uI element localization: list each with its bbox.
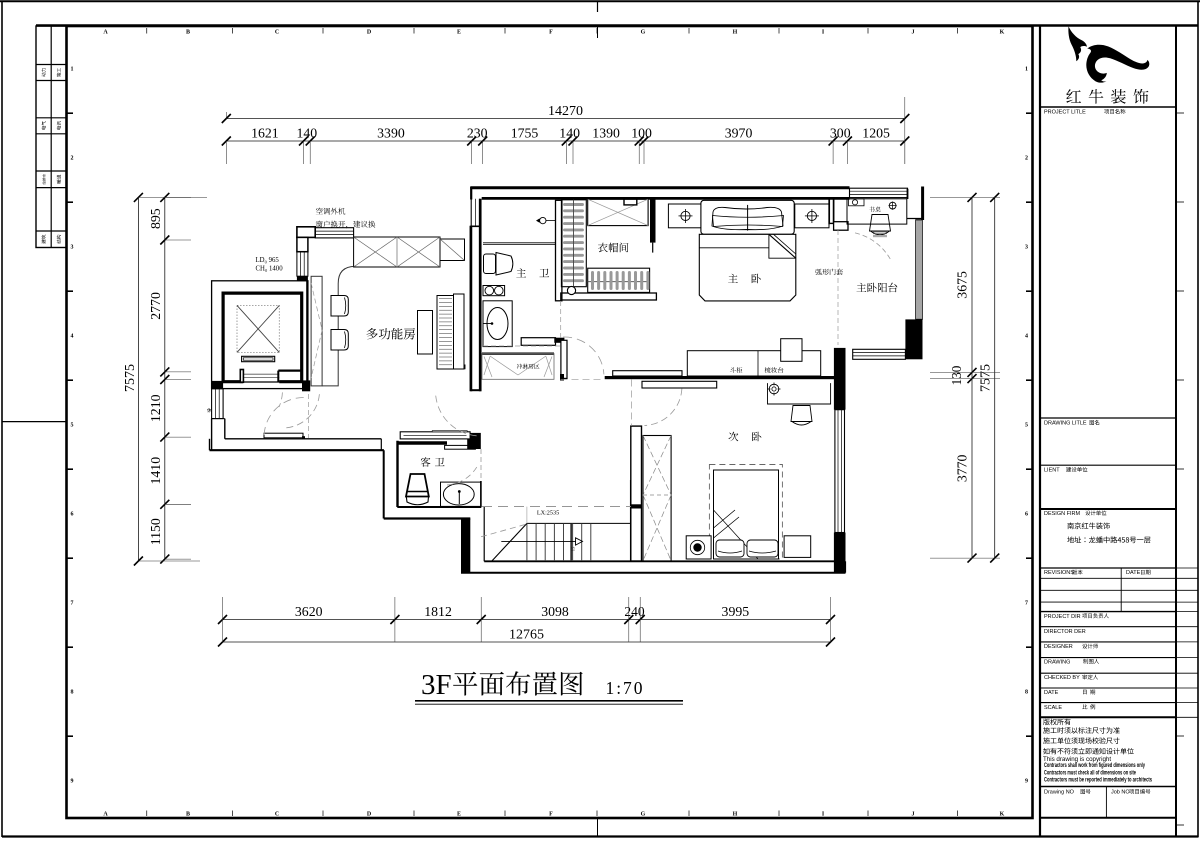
svg-text:PROJECT LITLE: PROJECT LITLE <box>1044 110 1086 116</box>
svg-text:A: A <box>103 30 108 36</box>
svg-text:3620: 3620 <box>295 604 323 619</box>
svg-text:SCALE: SCALE <box>1044 705 1062 711</box>
svg-text:G: G <box>641 30 646 36</box>
svg-text:4: 4 <box>1025 334 1028 340</box>
svg-text:H: H <box>733 30 738 36</box>
svg-text:D: D <box>367 812 372 818</box>
svg-text:F: F <box>549 30 553 36</box>
svg-text:15: 15 <box>571 546 576 551</box>
svg-text:3390: 3390 <box>377 126 405 141</box>
svg-text:A: A <box>103 812 108 818</box>
svg-text:3770: 3770 <box>955 454 970 482</box>
svg-text:3: 3 <box>1025 245 1028 251</box>
svg-text:6: 6 <box>1025 512 1028 518</box>
svg-text:DRAWING LITLE: DRAWING LITLE <box>1044 421 1087 427</box>
svg-text:C: C <box>275 812 279 818</box>
svg-text:LX:2535: LX:2535 <box>537 510 559 517</box>
svg-text:100: 100 <box>631 126 652 141</box>
svg-text:7575: 7575 <box>979 364 994 392</box>
svg-text:1812: 1812 <box>424 604 452 619</box>
svg-text:230: 230 <box>467 126 488 141</box>
svg-text:14270: 14270 <box>548 104 583 119</box>
svg-text:140: 140 <box>559 126 580 141</box>
svg-text:J: J <box>912 812 915 818</box>
svg-text:2770: 2770 <box>148 292 163 320</box>
svg-text:7575: 7575 <box>123 364 138 392</box>
svg-text:This drawing is copyright: This drawing is copyright <box>1043 756 1111 763</box>
svg-text:8: 8 <box>71 690 74 696</box>
svg-text:H: H <box>733 812 738 818</box>
svg-text:12765: 12765 <box>509 628 544 643</box>
svg-text:3F: 3F <box>421 669 452 701</box>
svg-text:1205: 1205 <box>862 126 890 141</box>
svg-text:B: B <box>186 812 190 818</box>
svg-text:9: 9 <box>1025 779 1028 785</box>
svg-text:休: 休 <box>207 407 212 414</box>
svg-text:G: G <box>641 812 646 818</box>
svg-text:130: 130 <box>949 365 964 385</box>
svg-text:DRAWING: DRAWING <box>1044 659 1070 665</box>
svg-text:1410: 1410 <box>148 457 163 485</box>
svg-text:1210: 1210 <box>148 394 163 422</box>
svg-text:CH₀ 1400: CH₀ 1400 <box>256 266 284 273</box>
svg-text:DIRECTOR DER: DIRECTOR DER <box>1044 629 1086 635</box>
svg-text:1:70: 1:70 <box>605 678 644 698</box>
svg-text:3: 3 <box>71 245 74 251</box>
svg-text:3675: 3675 <box>955 271 970 299</box>
svg-text:REVISIONS: REVISIONS <box>1044 570 1074 576</box>
svg-text:1: 1 <box>1025 67 1028 73</box>
svg-text:1: 1 <box>71 67 74 73</box>
svg-text:2: 2 <box>1025 156 1028 162</box>
svg-text:3995: 3995 <box>722 604 750 619</box>
svg-text:K: K <box>1000 812 1005 818</box>
svg-text:1150: 1150 <box>148 518 163 545</box>
svg-text:300: 300 <box>830 126 851 141</box>
svg-text:6: 6 <box>71 512 74 518</box>
svg-text:F: F <box>549 812 553 818</box>
svg-text:LIENT: LIENT <box>1044 468 1060 474</box>
svg-text:Contractors shall work from fi: Contractors shall work from figured dime… <box>1044 763 1145 769</box>
svg-text:7: 7 <box>71 601 74 607</box>
svg-text:J: J <box>912 30 915 36</box>
svg-text:Drawing NO: Drawing NO <box>1044 790 1075 796</box>
svg-text:Contractors must check all of: Contractors must check all of dimensions… <box>1044 770 1136 776</box>
svg-text:5: 5 <box>71 423 74 429</box>
svg-text:E: E <box>457 812 461 818</box>
svg-text:C: C <box>275 30 279 36</box>
svg-text:1755: 1755 <box>511 126 539 141</box>
svg-text:9: 9 <box>71 779 74 785</box>
svg-text:8: 8 <box>1025 690 1028 696</box>
svg-text:K: K <box>1000 30 1005 36</box>
svg-text:Contractors must be reported i: Contractors must be reported immediately… <box>1044 777 1152 783</box>
svg-text:LD₀ 965: LD₀ 965 <box>256 257 280 264</box>
svg-text:1390: 1390 <box>592 126 620 141</box>
svg-text:B: B <box>186 30 190 36</box>
svg-text:Job NO: Job NO <box>1111 790 1130 796</box>
svg-text:5: 5 <box>1025 423 1028 429</box>
svg-text:1621: 1621 <box>251 126 279 141</box>
svg-text:7: 7 <box>1025 601 1028 607</box>
svg-text:DATE: DATE <box>1044 690 1059 696</box>
svg-text:2: 2 <box>71 156 74 162</box>
svg-text:4: 4 <box>71 334 74 340</box>
svg-text:PROJECT DIR: PROJECT DIR <box>1044 614 1081 620</box>
svg-text:895: 895 <box>148 208 163 229</box>
svg-text:140: 140 <box>296 126 317 141</box>
svg-text:DESIGNER: DESIGNER <box>1044 644 1073 650</box>
svg-text:D: D <box>367 30 372 36</box>
svg-text:3098: 3098 <box>541 604 569 619</box>
svg-text:CHECKED BY: CHECKED BY <box>1044 675 1080 681</box>
svg-text:DESIGN FIRM: DESIGN FIRM <box>1044 511 1080 517</box>
svg-text:3970: 3970 <box>725 126 753 141</box>
svg-text:DATE: DATE <box>1126 570 1141 576</box>
svg-text:E: E <box>457 30 461 36</box>
svg-text:240: 240 <box>624 604 645 619</box>
